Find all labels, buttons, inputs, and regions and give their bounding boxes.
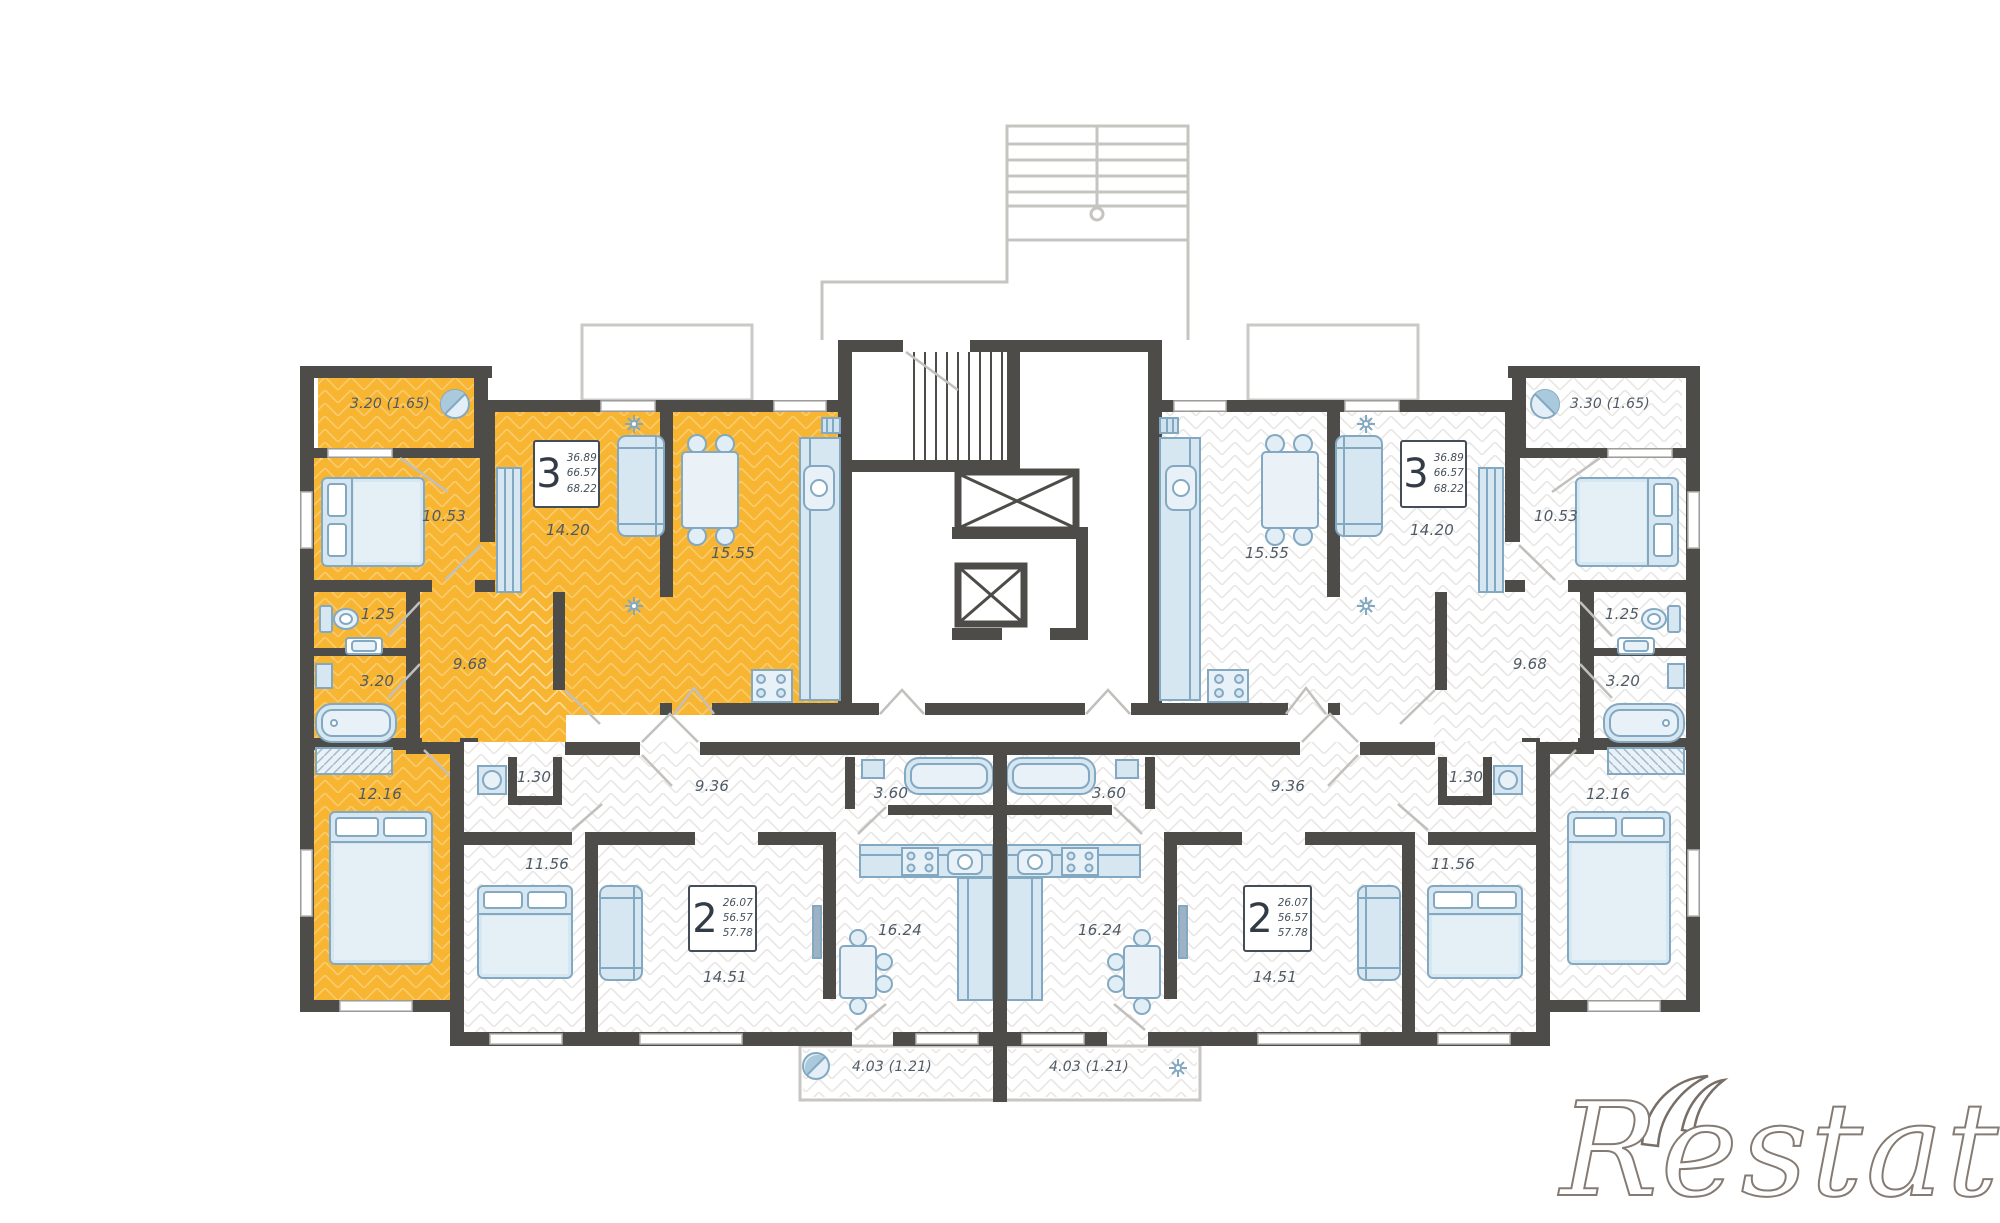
- apartment-areas: 26.07 56.57 57.78: [1278, 896, 1308, 942]
- room-area-label: 16.24: [1078, 921, 1122, 939]
- room-area-label: 1.30: [1449, 768, 1483, 786]
- room-area-label: 14.51: [1253, 968, 1297, 986]
- room-area-label: 10.53: [422, 507, 466, 525]
- room-area-label: 9.68: [1513, 655, 1547, 673]
- area-value: 57.78: [723, 926, 753, 941]
- toilet: [320, 606, 358, 632]
- room-area-label: 3.20: [360, 672, 394, 690]
- area-value: 66.57: [1434, 466, 1464, 481]
- area-value: 68.22: [1434, 482, 1464, 497]
- external-staircase: [822, 126, 1188, 340]
- room-area-label: 9.36: [695, 777, 729, 795]
- bathtub: [316, 704, 396, 742]
- sofa: [618, 436, 664, 536]
- room-area-label: 14.20: [1410, 521, 1454, 539]
- apartment-areas: 36.89 66.57 68.22: [567, 451, 597, 497]
- room-area-label: 3.20 (1.65): [350, 396, 430, 412]
- room-area-label: 1.25: [1605, 605, 1639, 623]
- bath-basin: [862, 760, 884, 778]
- apartment-type-number: 3: [1403, 454, 1428, 494]
- sofa: [600, 886, 642, 980]
- room-area-label: 4.03 (1.21): [1049, 1059, 1129, 1075]
- area-value: 57.78: [1278, 926, 1308, 941]
- area-value: 66.57: [567, 466, 597, 481]
- dining-table: [682, 435, 738, 545]
- wardrobe: [497, 468, 521, 592]
- room-area-label: 14.51: [703, 968, 747, 986]
- floorplan-drawing: [0, 0, 2000, 1223]
- room-area-label: 3.60: [874, 784, 908, 802]
- room-area-label: 12.16: [358, 785, 402, 803]
- room-area-label: 11.56: [1431, 855, 1475, 873]
- elevator-shaft-small: [958, 566, 1024, 624]
- area-value: 26.07: [723, 896, 753, 911]
- vent-grille-icon: [822, 418, 840, 433]
- kitchen-counter: [800, 438, 840, 700]
- room-area-label: 16.24: [878, 921, 922, 939]
- room-area-label: 3.30 (1.65): [1570, 396, 1650, 412]
- floorplan-screenshot: 3.20 (1.65) 10.53 14.20 15.55 1.25 3.20 …: [0, 0, 2000, 1223]
- room-area-label: 14.20: [546, 521, 590, 539]
- area-value: 68.22: [567, 482, 597, 497]
- bath-basin: [316, 664, 332, 688]
- double-bed: [478, 886, 572, 978]
- room-area-label: 1.25: [361, 605, 395, 623]
- room-area-label: 12.16: [1586, 785, 1630, 803]
- porthole-icon: [803, 1053, 829, 1079]
- apartment-type-number: 2: [1247, 899, 1272, 939]
- area-value: 56.57: [1278, 911, 1308, 926]
- bathtub: [905, 758, 993, 794]
- watermark-text: Restate: [1560, 1074, 2000, 1223]
- room-area-label: 11.56: [525, 855, 569, 873]
- washbasin: [346, 638, 382, 654]
- washing-machine: [478, 766, 506, 794]
- apartment-type-number: 3: [536, 454, 561, 494]
- apartment-type-card: 3 36.89 66.57 68.22: [1400, 440, 1467, 508]
- area-value: 56.57: [723, 911, 753, 926]
- room-area-label: 15.55: [711, 544, 755, 562]
- room-area-label: 15.55: [1245, 544, 1289, 562]
- room-area-label: 9.36: [1271, 777, 1305, 795]
- area-value: 36.89: [1434, 451, 1464, 466]
- room-area-label: 1.30: [517, 768, 551, 786]
- room-area-label: 9.68: [453, 655, 487, 673]
- apartment-type-card: 2 26.07 56.57 57.78: [1243, 885, 1312, 952]
- apartment-type-card: 2 26.07 56.57 57.78: [688, 885, 757, 952]
- area-value: 26.07: [1278, 896, 1308, 911]
- tv: [813, 906, 821, 958]
- room-area-label: 3.20: [1606, 672, 1640, 690]
- elevator-shaft-large: [958, 472, 1076, 530]
- double-bed: [322, 478, 424, 566]
- double-bed: [330, 812, 432, 964]
- room-area-label: 4.03 (1.21): [852, 1059, 932, 1075]
- upper-balcony-outline: [582, 325, 752, 400]
- area-value: 36.89: [567, 451, 597, 466]
- stove: [902, 848, 938, 875]
- apartment-areas: 26.07 56.57 57.78: [723, 896, 753, 942]
- room-area-label: 10.53: [1534, 507, 1578, 525]
- apartment-type-number: 2: [692, 899, 717, 939]
- hatched-wardrobe: [316, 748, 392, 774]
- apartment-type-card: 3 36.89 66.57 68.22: [533, 440, 600, 508]
- porthole-icon: [441, 390, 469, 418]
- stove: [752, 670, 792, 702]
- room-area-label: 3.60: [1092, 784, 1126, 802]
- apartment-areas: 36.89 66.57 68.22: [1434, 451, 1464, 497]
- restate-watermark: Restate: [1560, 1085, 2000, 1215]
